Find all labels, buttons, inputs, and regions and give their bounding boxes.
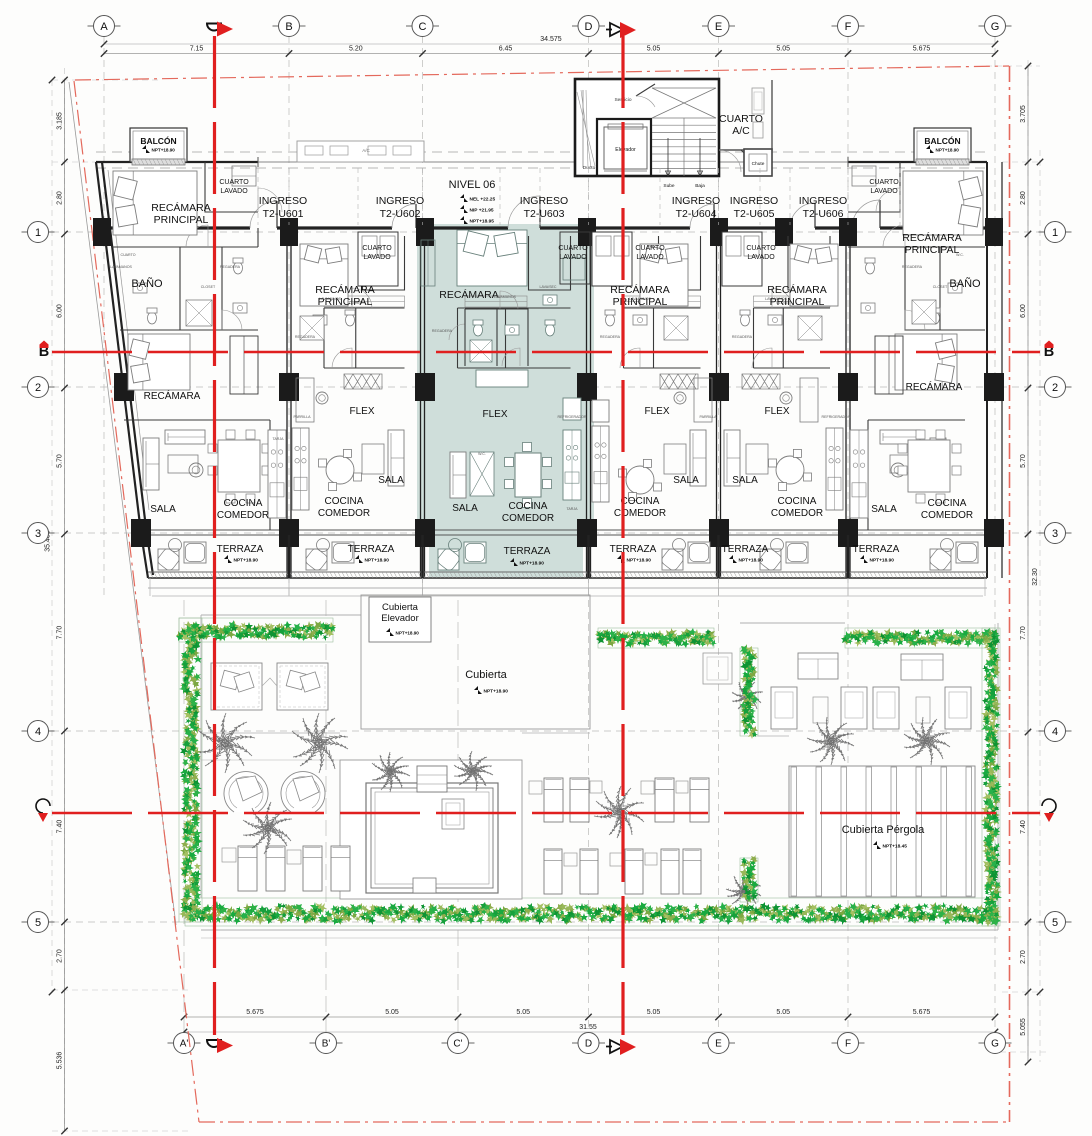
svg-text:G: G bbox=[991, 1039, 999, 1050]
svg-text:LAVADO: LAVADO bbox=[636, 254, 664, 261]
svg-text:7.70: 7.70 bbox=[57, 626, 64, 640]
svg-text:COMEDOR: COMEDOR bbox=[502, 513, 554, 524]
svg-text:6.00: 6.00 bbox=[57, 304, 64, 318]
svg-text:REFRIGERADOR: REFRIGERADOR bbox=[558, 415, 587, 419]
svg-text:BALCÓN: BALCÓN bbox=[140, 135, 176, 146]
svg-text:T2-U604: T2-U604 bbox=[676, 208, 717, 220]
svg-text:FLEX: FLEX bbox=[482, 409, 507, 420]
svg-text:PRINCIPAL: PRINCIPAL bbox=[905, 244, 960, 256]
svg-text:NPT+18.95: NPT+18.95 bbox=[470, 219, 495, 225]
svg-text:5.20: 5.20 bbox=[349, 46, 363, 53]
svg-text:LAVA/SEC: LAVA/SEC bbox=[539, 285, 556, 289]
svg-text:G: G bbox=[991, 21, 1000, 33]
svg-text:5.05: 5.05 bbox=[385, 1009, 399, 1016]
svg-text:COCINA: COCINA bbox=[325, 496, 364, 507]
svg-text:3: 3 bbox=[1052, 528, 1058, 540]
svg-text:NIVEL 06: NIVEL 06 bbox=[449, 179, 496, 191]
svg-text:W.C.: W.C. bbox=[956, 253, 964, 257]
svg-text:COCINA: COCINA bbox=[621, 496, 660, 507]
svg-text:BAÑO: BAÑO bbox=[131, 277, 163, 290]
svg-text:REGADERA: REGADERA bbox=[220, 265, 241, 269]
svg-text:INGRESO: INGRESO bbox=[376, 195, 424, 207]
svg-text:LAVAMANOS: LAVAMANOS bbox=[110, 265, 132, 269]
svg-text:3: 3 bbox=[35, 528, 41, 540]
svg-text:32.30: 32.30 bbox=[1032, 568, 1039, 586]
svg-text:T2-U601: T2-U601 bbox=[263, 208, 304, 220]
svg-text:Ducto: Ducto bbox=[583, 165, 596, 171]
svg-text:34.575: 34.575 bbox=[540, 36, 562, 43]
svg-text:CUARTO: CUARTO bbox=[635, 245, 665, 252]
svg-text:TERRAZA: TERRAZA bbox=[348, 544, 395, 555]
svg-text:5.05: 5.05 bbox=[647, 46, 661, 53]
svg-text:PRINCIPAL: PRINCIPAL bbox=[154, 214, 209, 226]
svg-text:2.80: 2.80 bbox=[1020, 191, 1027, 205]
svg-text:RECÁMARA: RECÁMARA bbox=[151, 201, 211, 214]
svg-text:A/C: A/C bbox=[732, 125, 750, 137]
svg-text:T2-U603: T2-U603 bbox=[524, 208, 565, 220]
svg-text:CLOSET: CLOSET bbox=[933, 285, 948, 289]
svg-text:PARRILLA: PARRILLA bbox=[699, 415, 717, 419]
svg-text:NIP +21.95: NIP +21.95 bbox=[470, 208, 494, 214]
svg-text:CUARTO: CUARTO bbox=[219, 179, 249, 186]
svg-text:A: A bbox=[100, 21, 108, 33]
svg-text:COCINA: COCINA bbox=[778, 496, 817, 507]
svg-text:NPT+18.90: NPT+18.90 bbox=[936, 148, 960, 153]
svg-text:4: 4 bbox=[1052, 726, 1058, 738]
svg-text:NPT+18.90: NPT+18.90 bbox=[520, 561, 545, 567]
svg-text:7.40: 7.40 bbox=[57, 820, 64, 834]
svg-text:6.45: 6.45 bbox=[499, 46, 513, 53]
svg-text:T2-U606: T2-U606 bbox=[803, 208, 844, 220]
svg-text:7.15: 7.15 bbox=[190, 46, 204, 53]
svg-text:LAVADO: LAVADO bbox=[870, 188, 898, 195]
svg-text:REGADERA: REGADERA bbox=[902, 265, 923, 269]
svg-text:6.00: 6.00 bbox=[1020, 304, 1027, 318]
svg-text:CUARTO: CUARTO bbox=[362, 245, 392, 252]
svg-text:Cubierta: Cubierta bbox=[465, 669, 507, 681]
svg-text:FLEX: FLEX bbox=[644, 406, 669, 417]
svg-text:RECÁMARA: RECÁMARA bbox=[906, 380, 963, 393]
svg-text:NPT+18.90: NPT+18.90 bbox=[870, 558, 895, 564]
svg-text:CUARTO: CUARTO bbox=[558, 245, 588, 252]
svg-text:REGADERA: REGADERA bbox=[295, 335, 316, 339]
svg-text:BAÑO: BAÑO bbox=[949, 277, 981, 290]
svg-text:SALA: SALA bbox=[732, 475, 758, 486]
svg-text:LAVADO: LAVADO bbox=[363, 254, 391, 261]
svg-text:COMEDOR: COMEDOR bbox=[217, 510, 269, 521]
svg-text:3.185: 3.185 bbox=[57, 112, 64, 130]
svg-text:REFRIGERADOR: REFRIGERADOR bbox=[822, 415, 851, 419]
svg-text:5.05: 5.05 bbox=[516, 1009, 530, 1016]
svg-text:FLEX: FLEX bbox=[349, 406, 374, 417]
svg-text:CUARTO: CUARTO bbox=[746, 245, 776, 252]
svg-text:LAVAMANOS: LAVAMANOS bbox=[765, 297, 787, 301]
svg-text:Elevador: Elevador bbox=[615, 147, 636, 153]
svg-text:Cubierta Pérgola: Cubierta Pérgola bbox=[842, 824, 925, 836]
svg-text:5.70: 5.70 bbox=[57, 454, 64, 468]
svg-text:F: F bbox=[845, 21, 852, 33]
svg-text:COMEDOR: COMEDOR bbox=[771, 508, 823, 519]
svg-text:COCINA: COCINA bbox=[509, 501, 548, 512]
svg-text:2.80: 2.80 bbox=[57, 191, 64, 205]
svg-text:NPT+18.45: NPT+18.45 bbox=[883, 844, 908, 850]
svg-text:TERRAZA: TERRAZA bbox=[853, 544, 900, 555]
svg-text:5.675: 5.675 bbox=[913, 1009, 931, 1016]
svg-text:RECÁMARA: RECÁMARA bbox=[439, 288, 499, 301]
svg-text:NPT+18.90: NPT+18.90 bbox=[152, 148, 176, 153]
svg-text:NEL +22.25: NEL +22.25 bbox=[470, 197, 496, 203]
svg-text:F: F bbox=[845, 1039, 851, 1050]
svg-text:5.05: 5.05 bbox=[647, 1009, 661, 1016]
svg-text:5.05: 5.05 bbox=[776, 1009, 790, 1016]
svg-text:TARJA: TARJA bbox=[566, 507, 578, 511]
svg-text:A/C: A/C bbox=[362, 148, 370, 153]
svg-text:NPT+18.90: NPT+18.90 bbox=[234, 558, 259, 564]
svg-text:D: D bbox=[585, 1039, 592, 1050]
svg-text:5.675: 5.675 bbox=[246, 1009, 264, 1016]
svg-text:NPT+18.90: NPT+18.90 bbox=[627, 558, 652, 564]
svg-text:REGADERA: REGADERA bbox=[732, 335, 753, 339]
svg-text:5.05: 5.05 bbox=[776, 46, 790, 53]
svg-text:D: D bbox=[585, 21, 593, 33]
svg-text:C': C' bbox=[453, 1039, 462, 1050]
svg-text:B: B bbox=[285, 21, 292, 33]
svg-text:CLOSET: CLOSET bbox=[201, 285, 216, 289]
svg-text:INGRESO: INGRESO bbox=[730, 195, 778, 207]
svg-text:INGRESO: INGRESO bbox=[259, 195, 307, 207]
svg-text:REGADERA: REGADERA bbox=[600, 335, 621, 339]
svg-text:CUARTO: CUARTO bbox=[719, 113, 763, 125]
svg-text:Cubierta: Cubierta bbox=[382, 602, 419, 613]
svg-text:CUARTO: CUARTO bbox=[120, 253, 135, 257]
svg-text:NPT+18.90: NPT+18.90 bbox=[484, 689, 509, 695]
svg-text:5.536: 5.536 bbox=[57, 1052, 64, 1070]
svg-text:CUARTO: CUARTO bbox=[869, 179, 899, 186]
svg-text:5.70: 5.70 bbox=[1020, 454, 1027, 468]
svg-text:INGRESO: INGRESO bbox=[799, 195, 847, 207]
svg-text:T2-U605: T2-U605 bbox=[734, 208, 775, 220]
svg-text:5.675: 5.675 bbox=[913, 46, 931, 53]
svg-text:TERRAZA: TERRAZA bbox=[217, 544, 264, 555]
svg-text:INGRESO: INGRESO bbox=[520, 195, 568, 207]
svg-text:2.70: 2.70 bbox=[57, 949, 64, 963]
svg-text:2: 2 bbox=[35, 382, 41, 394]
svg-text:TERRAZA: TERRAZA bbox=[610, 544, 657, 555]
svg-text:NPT+18.90: NPT+18.90 bbox=[396, 631, 420, 636]
svg-text:RECÁMARA: RECÁMARA bbox=[610, 283, 670, 296]
svg-text:31.55: 31.55 bbox=[579, 1024, 597, 1031]
svg-text:RECÁMARA: RECÁMARA bbox=[315, 283, 375, 296]
svg-text:SALA: SALA bbox=[150, 504, 176, 515]
svg-text:Baja: Baja bbox=[695, 183, 705, 189]
svg-text:7.70: 7.70 bbox=[1020, 626, 1027, 640]
svg-text:COCINA: COCINA bbox=[928, 498, 967, 509]
svg-text:PARRILLA: PARRILLA bbox=[293, 415, 311, 419]
svg-text:LAVAMANOS: LAVAMANOS bbox=[629, 297, 651, 301]
svg-text:3.705: 3.705 bbox=[1020, 105, 1027, 123]
svg-text:COCINA: COCINA bbox=[224, 498, 263, 509]
svg-text:Chute: Chute bbox=[752, 161, 765, 167]
svg-text:NPT+18.90: NPT+18.90 bbox=[365, 558, 390, 564]
svg-text:4: 4 bbox=[35, 726, 41, 738]
svg-text:LAVADO: LAVADO bbox=[559, 254, 587, 261]
svg-text:W.C.: W.C. bbox=[478, 452, 486, 456]
svg-text:C: C bbox=[419, 21, 427, 33]
svg-text:REGADERA: REGADERA bbox=[432, 329, 453, 333]
svg-text:TERRAZA: TERRAZA bbox=[722, 544, 769, 555]
svg-text:TERRAZA: TERRAZA bbox=[504, 546, 551, 557]
svg-text:COMEDOR: COMEDOR bbox=[921, 510, 973, 521]
svg-text:A': A' bbox=[180, 1039, 189, 1050]
svg-text:5.055: 5.055 bbox=[1020, 1018, 1027, 1036]
svg-text:2: 2 bbox=[1052, 382, 1058, 394]
svg-text:B': B' bbox=[322, 1039, 331, 1050]
svg-text:RECÁMARA: RECÁMARA bbox=[902, 231, 962, 244]
svg-text:5: 5 bbox=[35, 917, 41, 929]
svg-text:INGRESO: INGRESO bbox=[672, 195, 720, 207]
svg-text:SALA: SALA bbox=[871, 504, 897, 515]
svg-text:LAVADO: LAVADO bbox=[220, 188, 248, 195]
svg-text:COMEDOR: COMEDOR bbox=[318, 508, 370, 519]
svg-text:T2-U602: T2-U602 bbox=[380, 208, 421, 220]
svg-text:TARJA: TARJA bbox=[272, 437, 284, 441]
svg-text:7.40: 7.40 bbox=[1020, 820, 1027, 834]
svg-text:Elevador: Elevador bbox=[381, 613, 419, 624]
svg-text:Sube: Sube bbox=[663, 183, 675, 189]
svg-text:LAVAMANOS: LAVAMANOS bbox=[319, 297, 341, 301]
svg-text:FLEX: FLEX bbox=[764, 406, 789, 417]
svg-text:RECÁMARA: RECÁMARA bbox=[144, 389, 201, 402]
svg-text:E: E bbox=[715, 1039, 722, 1050]
svg-text:NPT+18.90: NPT+18.90 bbox=[739, 558, 764, 564]
svg-text:5: 5 bbox=[1052, 917, 1058, 929]
svg-text:LAVAMANOS: LAVAMANOS bbox=[494, 295, 516, 299]
svg-text:SALA: SALA bbox=[378, 475, 404, 486]
svg-text:BALCÓN: BALCÓN bbox=[924, 135, 960, 146]
svg-text:1: 1 bbox=[35, 227, 41, 239]
svg-text:1: 1 bbox=[1052, 227, 1058, 239]
svg-text:SALA: SALA bbox=[673, 475, 699, 486]
svg-text:2.70: 2.70 bbox=[1020, 950, 1027, 964]
svg-text:RECÁMARA: RECÁMARA bbox=[767, 283, 827, 296]
svg-text:E: E bbox=[715, 21, 722, 33]
svg-text:LAVADO: LAVADO bbox=[747, 254, 775, 261]
svg-text:SALA: SALA bbox=[452, 503, 478, 514]
